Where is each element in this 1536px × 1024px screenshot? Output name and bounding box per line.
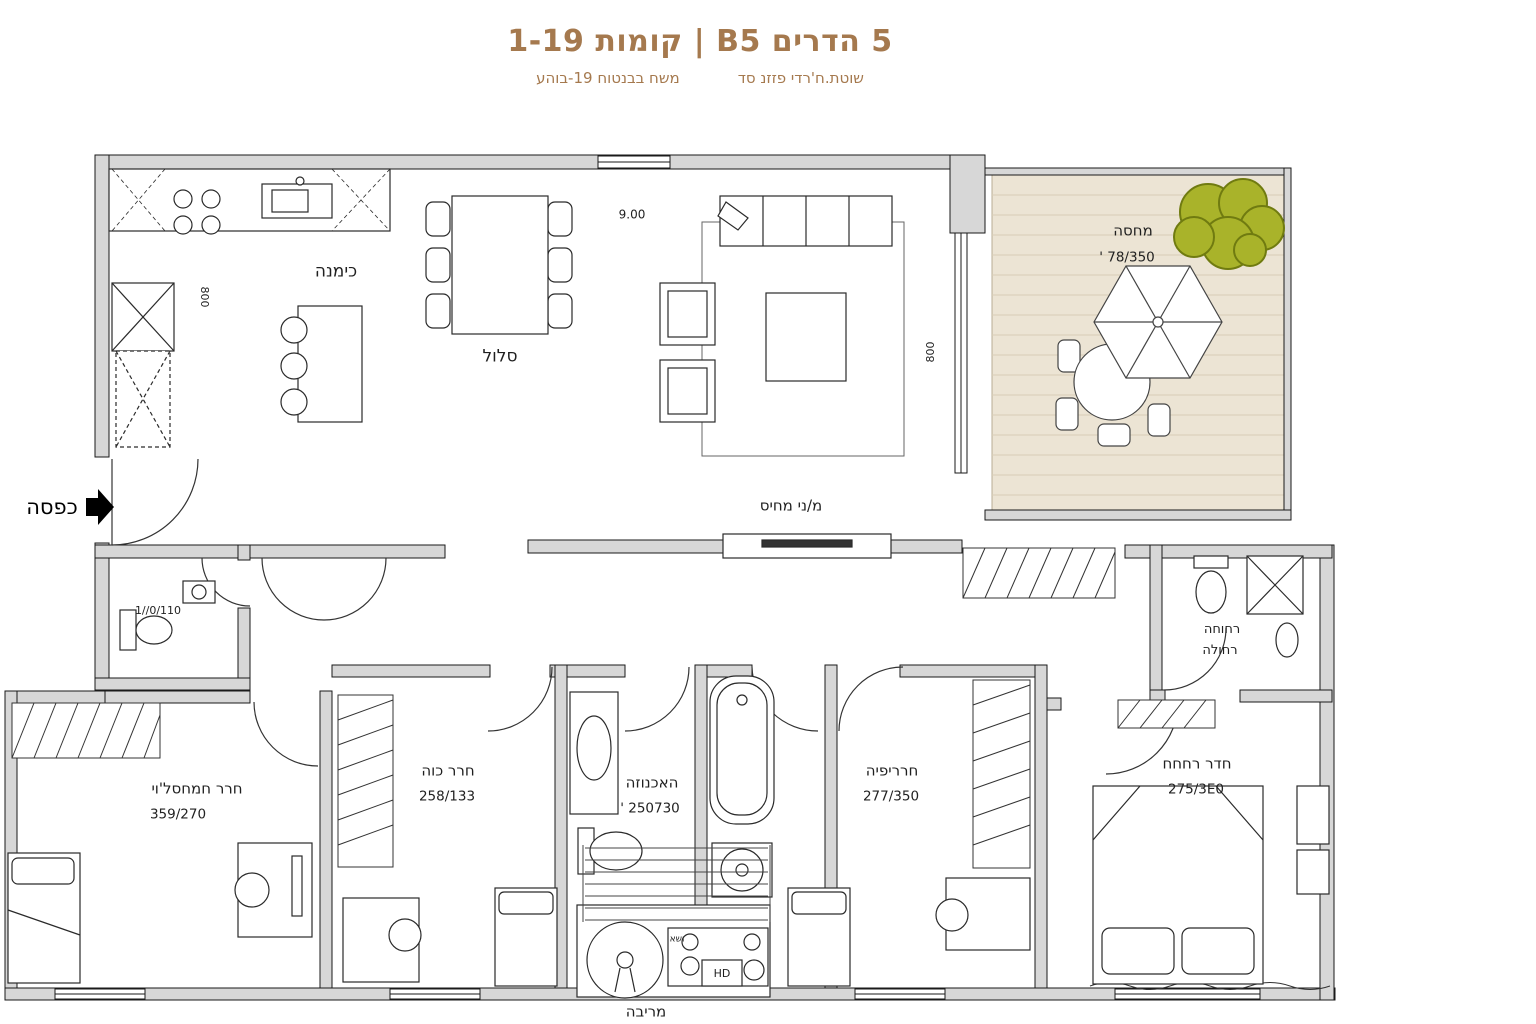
bedroom-main-dim: 359/270: [150, 807, 206, 824]
bedroom-main-label: חרר חמחסל'וי: [151, 780, 242, 799]
laundry-appliance-label: HD: [714, 967, 731, 981]
bedroom-3-label: חרריפיה: [866, 762, 919, 781]
balcony-dim: 78/350 ': [1099, 250, 1155, 267]
subtitle-left: משח בבנטוח 19-בוהע: [536, 69, 680, 87]
dim-top-width: 9.00: [619, 208, 646, 223]
floor-plan-page: 5 הדרים B5 | קומות 1-19 שוטת.ח'רדי פזזנ …: [0, 0, 1536, 1024]
dim-left-height: 800: [197, 287, 211, 308]
bedroom-4-dim: 275/3E0: [1168, 782, 1224, 799]
dim-right-height: 800: [924, 342, 938, 363]
dining-label: סלול: [483, 346, 518, 367]
bedroom-2-label: חרר כוה: [421, 762, 474, 781]
kitchen-furniture: [109, 169, 390, 447]
page-title: 5 הדרים B5 | קומות 1-19: [420, 24, 980, 59]
balcony-label: מחסה: [1113, 222, 1153, 241]
laundry-small-label: ושא: [670, 934, 685, 945]
kitchen-label: כימנה: [315, 261, 357, 282]
header: 5 הדרים B5 | קומות 1-19 שוטת.ח'רדי פזזנ …: [420, 24, 980, 87]
laundry-label: מריבה: [626, 1003, 666, 1022]
dining-table: [426, 196, 572, 334]
bedroom-4-label: חדר רחחח: [1162, 755, 1231, 774]
bedroom-2-dim: 258/133: [419, 789, 475, 806]
living-label: מ/ני מחיס: [760, 497, 822, 516]
subtitle-right: שוטת.ח'רדי פזזנ סד: [738, 69, 864, 87]
bathroom-central-label: האכנוזה: [626, 774, 679, 793]
entrance-label: כפסה: [26, 494, 78, 520]
bathroom-top-right-label-2: רחולה: [1202, 643, 1237, 659]
bathroom-top-right-label-1: רחוחה: [1204, 622, 1240, 638]
entrance-arrow-icon: [86, 489, 114, 525]
toilet-dim: 1//0/110: [135, 604, 181, 618]
page-subtitle: שוטת.ח'רדי פזזנ סד משח בבנטוח 19-בוהע: [420, 69, 980, 87]
bathroom-central-dim: 250730 ': [620, 801, 680, 818]
bedroom-3-dim: 277/350: [863, 789, 919, 806]
